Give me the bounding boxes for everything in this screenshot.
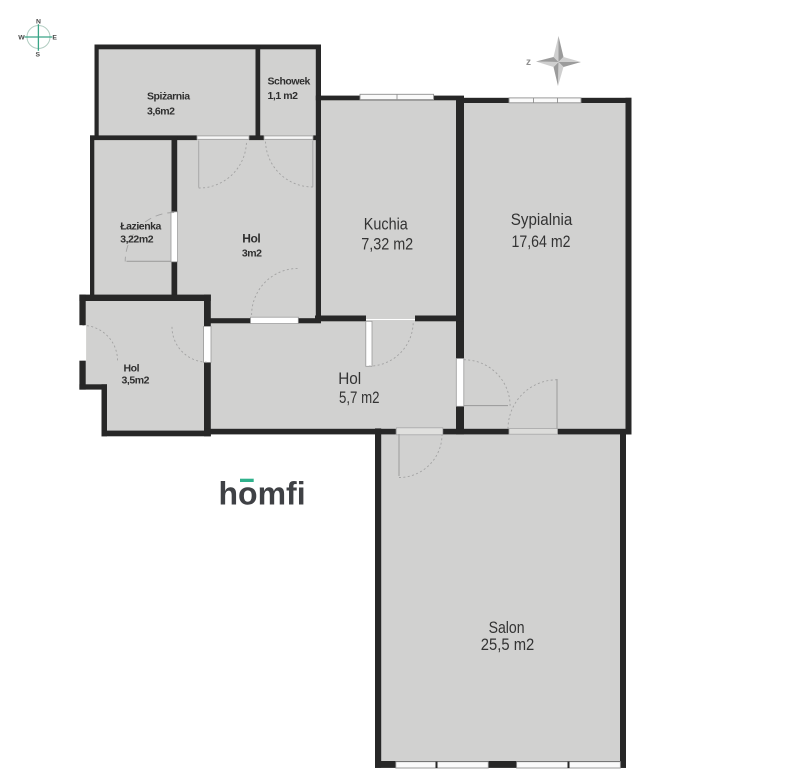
svg-text:S: S — [36, 52, 41, 59]
svg-text:Salon: Salon — [489, 619, 525, 637]
svg-text:Kuchia: Kuchia — [364, 215, 409, 233]
svg-text:3,5m2: 3,5m2 — [122, 375, 150, 387]
svg-text:3m2: 3m2 — [242, 247, 262, 259]
svg-text:5,7 m2: 5,7 m2 — [339, 389, 380, 407]
svg-text:1,1 m2: 1,1 m2 — [268, 90, 299, 102]
svg-text:Hol: Hol — [124, 362, 140, 374]
svg-text:Hol: Hol — [338, 370, 361, 388]
svg-text:3,22m2: 3,22m2 — [120, 234, 154, 246]
svg-text:3,6m2: 3,6m2 — [147, 106, 175, 118]
svg-text:N: N — [36, 19, 41, 26]
svg-text:25,5 m2: 25,5 m2 — [481, 636, 535, 654]
svg-text:Sypialnia: Sypialnia — [511, 211, 573, 229]
svg-text:E: E — [52, 35, 57, 42]
svg-text:7,32 m2: 7,32 m2 — [361, 235, 413, 253]
svg-text:Łazienka: Łazienka — [120, 221, 161, 233]
svg-text:Spiżarnia: Spiżarnia — [147, 91, 190, 103]
svg-text:W: W — [18, 35, 25, 42]
svg-text:17,64 m2: 17,64 m2 — [512, 233, 571, 251]
svg-text:Schowek: Schowek — [268, 76, 311, 88]
svg-text:homfi: homfi — [219, 476, 306, 512]
svg-text:z: z — [526, 57, 531, 68]
svg-text:Hol: Hol — [242, 231, 260, 245]
